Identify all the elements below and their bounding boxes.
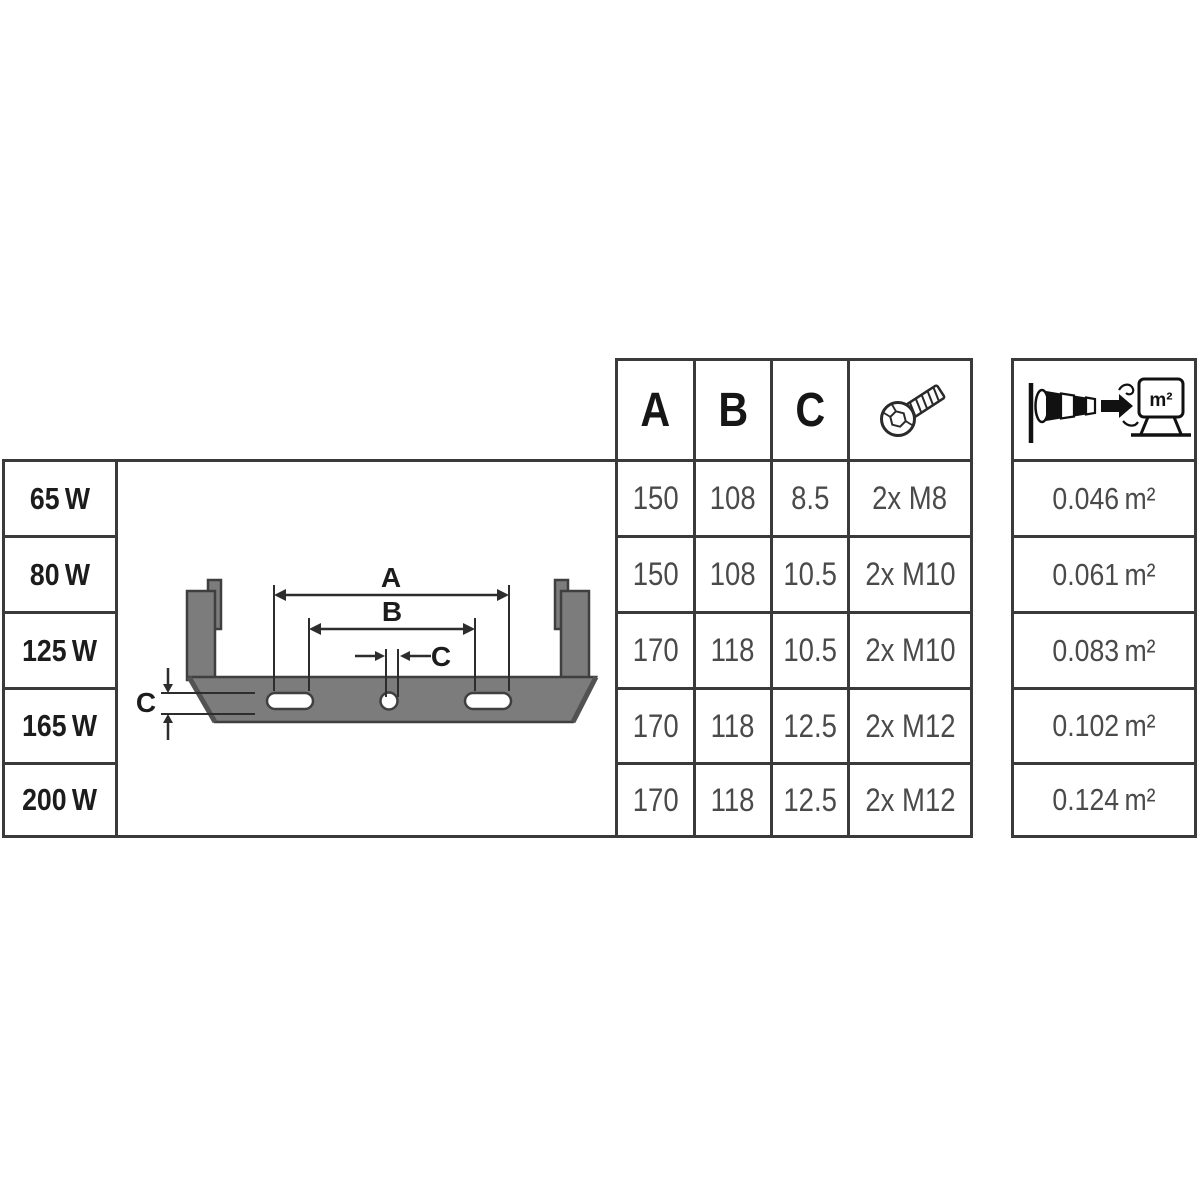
power-label: 125 W: [23, 633, 98, 669]
power-label: 165 W: [23, 708, 98, 744]
value-screws: 2x M8: [873, 480, 948, 517]
cell-b: 118: [693, 687, 773, 765]
column-label-a: A: [641, 383, 671, 438]
cell-b: 108: [693, 535, 773, 614]
bracket-diagram-cell: A B C: [115, 459, 618, 838]
power-label: 200 W: [23, 782, 98, 818]
cell-a: 150: [615, 535, 696, 614]
cell-wind-area: 0.061 m²: [1011, 535, 1197, 614]
cell-wind-area: 0.046 m²: [1011, 459, 1197, 538]
header-cell-b: B: [693, 358, 773, 462]
dim-label-b: B: [382, 596, 402, 627]
cell-wind-area: 0.124 m²: [1011, 762, 1197, 838]
power-label: 80 W: [30, 557, 90, 593]
cell-screws: 2x M10: [847, 535, 973, 614]
cell-a: 170: [615, 687, 696, 765]
value-wind-area: 0.124 m²: [1052, 782, 1155, 818]
cell-c: 12.5: [770, 762, 850, 838]
floodlight-icon: m²: [1131, 379, 1191, 435]
cell-wind-area: 0.102 m²: [1011, 687, 1197, 765]
cell-b: 108: [693, 459, 773, 538]
value-b: 118: [711, 632, 755, 669]
center-hole: [381, 693, 398, 710]
mounting-datasheet: A B C: [0, 0, 1200, 1200]
value-c: 12.5: [783, 782, 837, 819]
value-wind-area: 0.046 m²: [1052, 481, 1155, 517]
cell-c: 10.5: [770, 535, 850, 614]
value-b: 118: [711, 708, 755, 745]
right-slot: [465, 693, 511, 709]
cell-wind-area: 0.083 m²: [1011, 611, 1197, 690]
dim-label-c-thickness: C: [136, 687, 156, 718]
power-label: 65 W: [30, 481, 90, 517]
wind-area-icon: m²: [1015, 363, 1193, 457]
power-cell: 80 W: [2, 535, 118, 614]
dim-label-a: A: [381, 562, 401, 593]
square-meter-label: m²: [1149, 390, 1172, 411]
value-screws: 2x M10: [865, 632, 955, 669]
header-cell-screw: [847, 358, 973, 462]
value-screws: 2x M12: [865, 782, 955, 819]
header-cell-a: A: [615, 358, 696, 462]
value-c: 12.5: [783, 708, 837, 745]
cell-c: 12.5: [770, 687, 850, 765]
cell-screws: 2x M10: [847, 611, 973, 690]
value-b: 118: [711, 782, 755, 819]
value-wind-area: 0.083 m²: [1052, 633, 1155, 669]
value-a: 150: [633, 480, 679, 517]
value-wind-area: 0.061 m²: [1052, 557, 1155, 593]
value-screws: 2x M10: [865, 556, 955, 593]
column-label-c: C: [795, 383, 825, 438]
power-cell: 200 W: [2, 762, 118, 838]
value-a: 170: [633, 708, 679, 745]
value-wind-area: 0.102 m²: [1052, 708, 1155, 744]
value-c: 10.5: [783, 632, 837, 669]
mounting-bracket-diagram: A B C: [119, 463, 614, 834]
screw-icon: [851, 362, 969, 458]
value-b: 108: [710, 556, 756, 593]
cell-screws: 2x M12: [847, 687, 973, 765]
value-a: 170: [633, 782, 679, 819]
power-cell: 65 W: [2, 459, 118, 538]
cell-a: 150: [615, 459, 696, 538]
value-b: 108: [710, 480, 756, 517]
cell-b: 118: [693, 611, 773, 690]
dim-label-c-hole: C: [431, 641, 451, 672]
value-a: 170: [633, 632, 679, 669]
cell-screws: 2x M8: [847, 459, 973, 538]
cell-a: 170: [615, 762, 696, 838]
header-cell-wind-area: m²: [1011, 358, 1197, 462]
cell-c: 8.5: [770, 459, 850, 538]
value-c: 10.5: [783, 556, 837, 593]
cell-c: 10.5: [770, 611, 850, 690]
power-cell: 165 W: [2, 687, 118, 765]
windsock-icon: [1031, 383, 1095, 443]
left-slot: [267, 693, 313, 709]
header-cell-c: C: [770, 358, 850, 462]
column-label-b: B: [718, 383, 748, 438]
value-c: 8.5: [791, 480, 829, 517]
cell-screws: 2x M12: [847, 762, 973, 838]
cell-b: 118: [693, 762, 773, 838]
cell-a: 170: [615, 611, 696, 690]
wind-arrow-icon: [1101, 385, 1138, 426]
value-a: 150: [633, 556, 679, 593]
power-cell: 125 W: [2, 611, 118, 690]
value-screws: 2x M12: [865, 708, 955, 745]
